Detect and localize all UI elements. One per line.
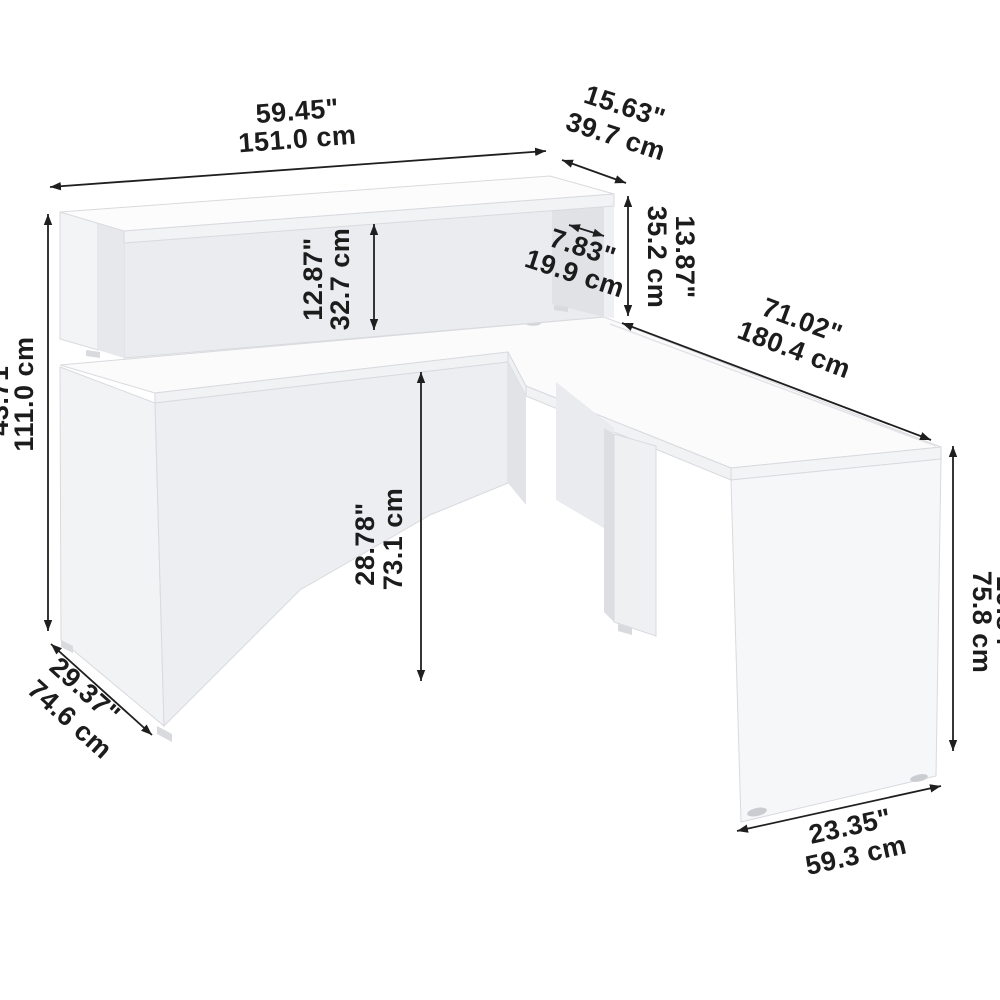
return-right-end-panel — [731, 459, 941, 822]
dim-hutch-height-inches: 13.87" — [670, 215, 700, 298]
dim-hutch-height: 13.87" 35.2 cm — [628, 196, 700, 316]
dim-hutch-height-cm: 35.2 cm — [642, 206, 672, 309]
dim-worksurface-height-inches: 28.78" — [350, 502, 380, 585]
return-support-panel-edge — [604, 428, 614, 622]
dim-return-panel-height: 29.84" 75.8 cm — [953, 446, 1000, 751]
desk-front-panel — [155, 362, 508, 726]
dim-overall-height: 43.71" 111.0 cm — [0, 214, 48, 631]
desk-dimension-diagram: 59.45" 151.0 cm 15.63" 39.7 cm 13.87" 35… — [0, 0, 1000, 1000]
dimension-diagram-page: 59.45" 151.0 cm 15.63" 39.7 cm 13.87" 35… — [0, 0, 1000, 1000]
hutch-left-panel-outer-face — [60, 212, 98, 350]
dim-return-panel-height-cm: 75.8 cm — [967, 571, 997, 674]
desk-foot-front-left — [157, 726, 172, 742]
dim-hutch-opening-height-inches: 12.87" — [298, 237, 328, 320]
dim-overall-height-cm: 111.0 cm — [9, 336, 39, 451]
dim-hutch-width-cm: 151.0 cm — [237, 120, 357, 159]
dim-hutch-opening-height-cm: 32.7 cm — [325, 228, 355, 331]
return-support-panel — [614, 434, 656, 636]
dim-hutch-depth: 15.63" 39.7 cm — [562, 79, 669, 183]
hutch-left-panel-front-edge — [98, 222, 124, 358]
dim-worksurface-height-cm: 73.1 cm — [378, 488, 408, 591]
desk-drawing — [60, 176, 941, 822]
hutch-foot-left — [86, 350, 100, 358]
dim-hutch-width: 59.45" 151.0 cm — [50, 93, 546, 187]
